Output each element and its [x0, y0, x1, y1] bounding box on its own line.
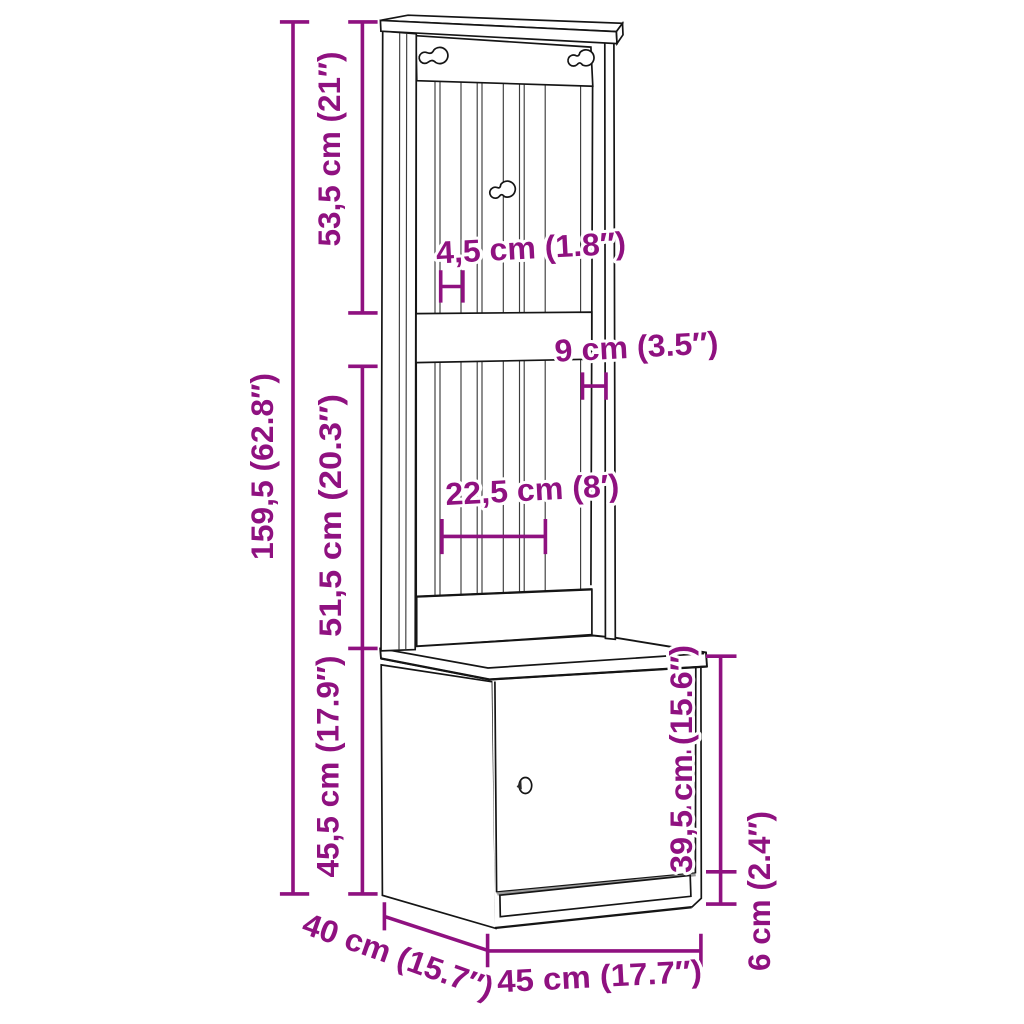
svg-text:6 cm (2.4″): 6 cm (2.4″): [741, 811, 777, 971]
svg-text:39,5 cm (15.6″): 39,5 cm (15.6″): [663, 645, 699, 873]
svg-text:53,5 cm (21″): 53,5 cm (21″): [311, 52, 347, 247]
svg-text:159,5 (62.8″): 159,5 (62.8″): [244, 373, 280, 560]
svg-text:51,5 cm (20.3″): 51,5 cm (20.3″): [312, 394, 348, 637]
svg-text:45,5 cm (17.9″): 45,5 cm (17.9″): [310, 656, 346, 878]
